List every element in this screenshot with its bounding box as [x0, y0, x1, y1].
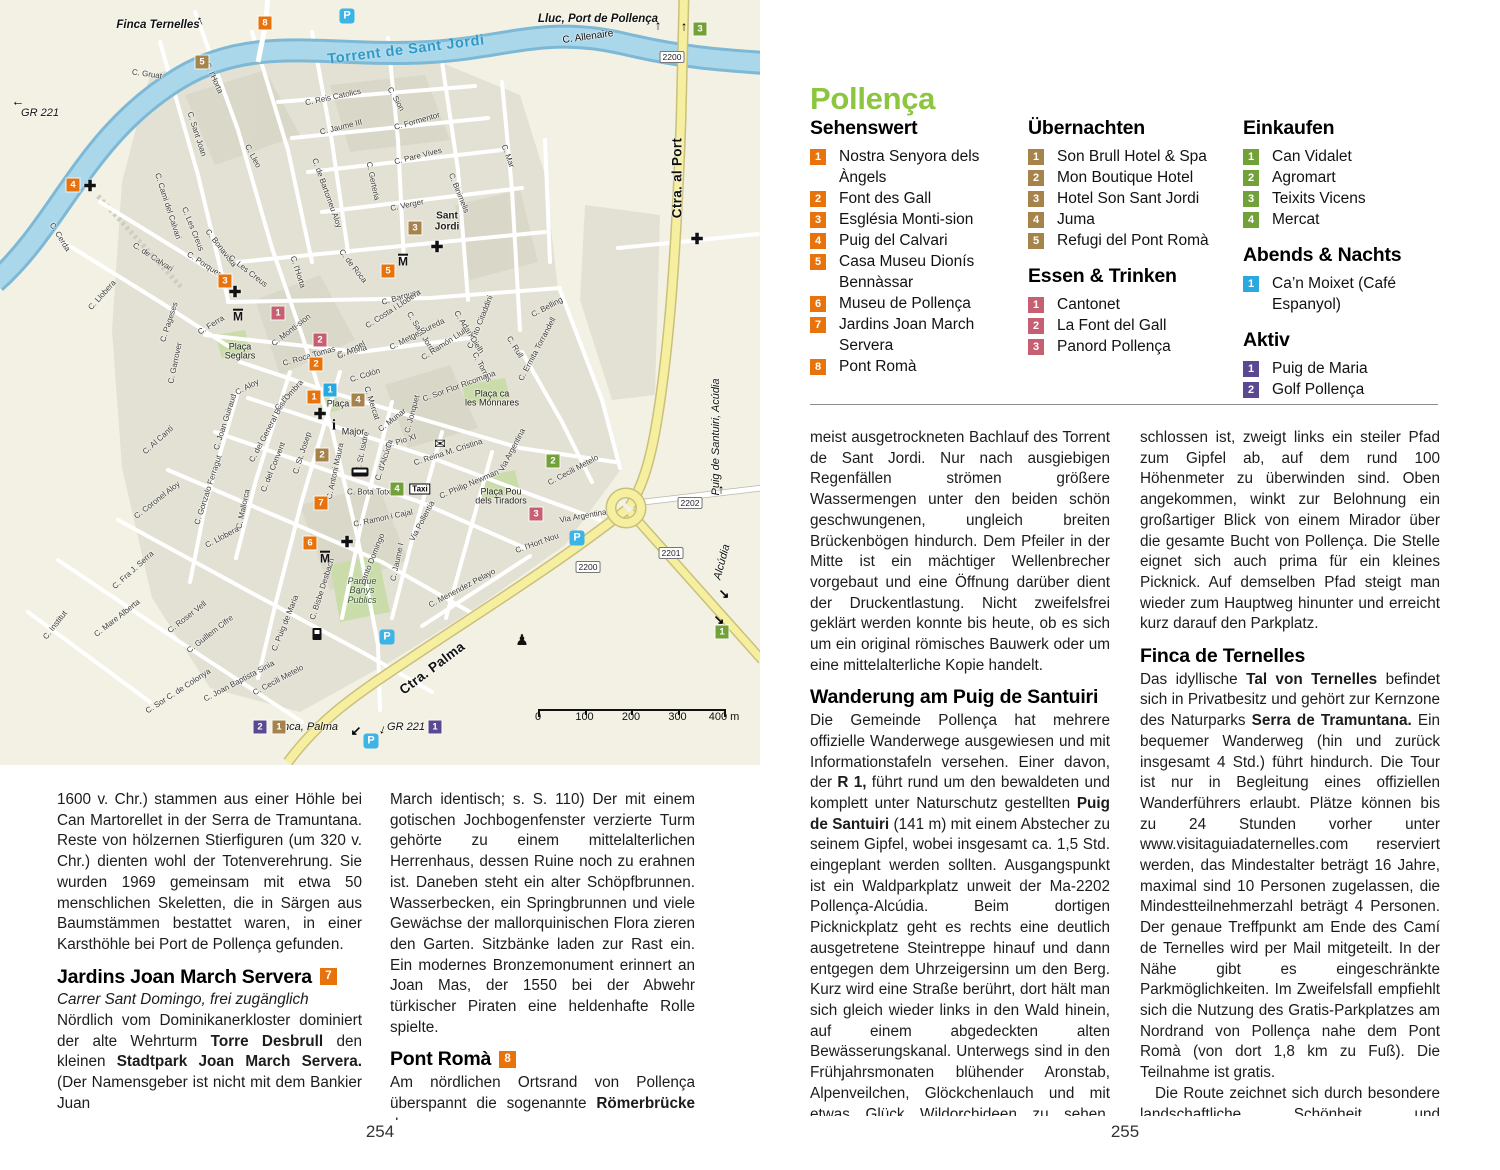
- text-block: Wanderung am Puig de Santuiri: [810, 687, 1110, 708]
- divider-rule: [810, 404, 1438, 405]
- section-heading-text: Finca de Ternelles: [1140, 646, 1305, 667]
- legend-row: 3 Panord Pollença: [1028, 336, 1236, 357]
- legend-row: 1 Nostra Senyora dels Àngels: [810, 146, 1018, 188]
- legend-row: 3 Hotel Son Sant Jordi: [1028, 188, 1236, 209]
- section-heading-text: Pont Romà: [390, 1049, 491, 1070]
- scale-tick-label: 100: [575, 711, 593, 723]
- text-block: Am nördlichen Ortsrand von Pollença über…: [390, 1073, 695, 1120]
- paragraph: Die Route zeichnet sich durch besondere …: [1140, 1084, 1440, 1116]
- legend-item-label: Teixits Vicens: [1272, 190, 1366, 207]
- text-block: meist ausgetrockneten Bachlauf des Torre…: [810, 428, 1110, 676]
- legend-row: 4 Puig del Calvari: [810, 230, 1018, 251]
- legend-badge: 5: [810, 254, 826, 270]
- legend-heading: Sehenswert: [810, 117, 917, 139]
- legend-badge: 5: [1028, 233, 1044, 249]
- legend-badge: 1: [1243, 361, 1259, 377]
- legend-item-label: Església Monti-sion: [839, 211, 973, 228]
- legend-badge: 4: [810, 233, 826, 249]
- text-block: Das idyllische Tal von Ternelles befinde…: [1140, 670, 1440, 1084]
- scale-tick-label: 200: [622, 711, 640, 723]
- legend-row: Einkaufen: [1243, 118, 1451, 140]
- text-block: Carrer Sant Domingo, frei zugänglich: [57, 990, 362, 1011]
- section-heading-badge: 8: [499, 1051, 516, 1068]
- page-number-right: 255: [810, 1122, 1440, 1142]
- legend-row: Sehenswert: [810, 118, 1018, 140]
- legend-item-label: Nostra Senyora dels Àngels: [839, 148, 979, 186]
- text-block: schlossen ist, zweigt links ein steiler …: [1140, 428, 1440, 635]
- scale-labels: 0100200300400 m: [538, 717, 724, 733]
- paragraph: Die Gemeinde Pollença hat mehrere offizi…: [810, 711, 1110, 1116]
- legend-row: 5 Casa Museu Dionís Bennàssar: [810, 251, 1018, 293]
- text-block: March identisch; s. S. 110) Der mit eine…: [390, 790, 695, 1038]
- legend-column-2: Übernachten 1 Son Brull Hotel & Spa 2 Mo…: [1028, 103, 1236, 357]
- text-block: Pont Romà 8: [390, 1049, 695, 1070]
- legend-badge: 2: [1243, 170, 1259, 186]
- paragraph: schlossen ist, zweigt links ein steiler …: [1140, 428, 1440, 635]
- legend-item-label: Font des Gall: [839, 190, 931, 207]
- legend-heading: Einkaufen: [1243, 117, 1334, 139]
- page-number-left: 254: [0, 1122, 760, 1142]
- legend-item-label: La Font del Gall: [1057, 317, 1166, 334]
- legend-heading: Abends & Nachts: [1243, 244, 1401, 266]
- section-heading-text: Wanderung am Puig de Santuiri: [810, 687, 1098, 708]
- legend-row: Übernachten: [1028, 118, 1236, 140]
- legend-item-label: Hotel Son Sant Jordi: [1057, 190, 1199, 207]
- book-spread: Torrent de Sant Jordi C. GruatC. l'Horta…: [0, 0, 1500, 1170]
- scale-bar: 0100200300400 m: [538, 709, 724, 735]
- legend-badge: 1: [1028, 297, 1044, 313]
- legend-row: Aktiv: [1243, 330, 1451, 352]
- legend-badge: 7: [810, 317, 826, 333]
- legend-row: 2 Font des Gall: [810, 188, 1018, 209]
- legend-row: 3 Teixits Vicens: [1243, 188, 1451, 209]
- legend-badge: 1: [1243, 276, 1259, 292]
- legend-badge: 8: [810, 359, 826, 375]
- scale-tick-label: 400 m: [709, 711, 740, 723]
- paragraph: Carrer Sant Domingo, frei zugänglich: [57, 990, 362, 1011]
- legend-badge: 2: [1028, 318, 1044, 334]
- paragraph: 1600 v. Chr.) stammen aus einer Höhle be…: [57, 790, 362, 956]
- scale-tick-label: 0: [535, 711, 541, 723]
- legend-row: Essen & Trinken: [1028, 266, 1236, 288]
- page-left: Torrent de Sant Jordi C. GruatC. l'Horta…: [0, 0, 760, 1170]
- legend-row: 3 Església Monti-sion: [810, 209, 1018, 230]
- legend-item-label: Cantonet: [1057, 296, 1120, 313]
- section-heading-badge: 7: [320, 968, 337, 985]
- paragraph: meist ausgetrockneten Bachlauf des Torre…: [810, 428, 1110, 676]
- legend-row: 4 Mercat: [1243, 209, 1451, 230]
- legend-badge: 3: [810, 212, 826, 228]
- right-page-column-1: meist ausgetrockneten Bachlauf des Torre…: [810, 428, 1110, 1116]
- page-right: Pollença Sehenswert 1 Nostra Senyora del…: [810, 0, 1440, 1170]
- text-block: 1600 v. Chr.) stammen aus einer Höhle be…: [57, 790, 362, 956]
- section-heading-text: Jardins Joan March Servera: [57, 967, 312, 988]
- legend-item-label: Mercat: [1272, 211, 1319, 228]
- legend-row: 8 Pont Romà: [810, 356, 1018, 377]
- legend-row: 5 Refugi del Pont Romà: [1028, 230, 1236, 251]
- legend-item-label: Son Brull Hotel & Spa: [1057, 148, 1207, 165]
- legend-item-label: Puig de Maria: [1272, 360, 1368, 377]
- legend-item-label: Museu de Pollença: [839, 295, 971, 312]
- left-page-column-2: March identisch; s. S. 110) Der mit eine…: [390, 790, 695, 1120]
- legend-item-label: Puig del Calvari: [839, 232, 948, 249]
- legend-row: 1 Cantonet: [1028, 294, 1236, 315]
- legend-row: 2 Golf Pollença: [1243, 379, 1451, 400]
- text-block: Die Gemeinde Pollença hat mehrere offizi…: [810, 711, 1110, 1116]
- paragraph: Das idyllische Tal von Ternelles befinde…: [1140, 670, 1440, 1084]
- legend-row: 1 Son Brull Hotel & Spa: [1028, 146, 1236, 167]
- legend-badge: 3: [1028, 191, 1044, 207]
- legend-badge: 6: [810, 296, 826, 312]
- legend-badge: 3: [1243, 191, 1259, 207]
- paragraph: Nördlich vom Dominikanerkloster dominier…: [57, 1011, 362, 1115]
- section-heading: Wanderung am Puig de Santuiri: [810, 687, 1110, 708]
- legend-item-label: Golf Pollença: [1272, 381, 1364, 398]
- legend-item-label: Panord Pollença: [1057, 338, 1171, 355]
- legend-item-label: Mon Boutique Hotel: [1057, 169, 1193, 186]
- legend-badge: 4: [1243, 212, 1259, 228]
- legend-badge: 4: [1028, 212, 1044, 228]
- legend-row: 4 Juma: [1028, 209, 1236, 230]
- legend-row: 6 Museu de Pollença: [810, 293, 1018, 314]
- legend-badge: 2: [1028, 170, 1044, 186]
- legend-badge: 1: [1243, 149, 1259, 165]
- right-page-column-2: schlossen ist, zweigt links ein steiler …: [1140, 428, 1440, 1116]
- legend-heading: Übernachten: [1028, 117, 1145, 139]
- text-block: Jardins Joan March Servera 7: [57, 967, 362, 988]
- section-heading: Pont Romà 8: [390, 1049, 695, 1070]
- legend-item-label: Pont Romà: [839, 358, 917, 375]
- scale-tick-label: 300: [668, 711, 686, 723]
- legend-item-label: Casa Museu Dionís Bennàssar: [839, 253, 974, 291]
- legend-item-label: Ca’n Moixet (Café Espanyol): [1272, 275, 1396, 313]
- legend-heading: Aktiv: [1243, 329, 1290, 351]
- left-page-column-1: 1600 v. Chr.) stammen aus einer Höhle be…: [57, 790, 362, 1120]
- legend-row: 7 Jardins Joan March Servera: [810, 314, 1018, 356]
- section-heading: Jardins Joan March Servera 7: [57, 967, 362, 988]
- legend-badge: 3: [1028, 339, 1044, 355]
- paragraph: March identisch; s. S. 110) Der mit eine…: [390, 790, 695, 1038]
- legend-badge: 1: [810, 149, 826, 165]
- text-block: Die Route zeichnet sich durch besondere …: [1140, 1084, 1440, 1116]
- legend-item-label: Jardins Joan March Servera: [839, 316, 974, 354]
- legend-item-label: Refugi del Pont Romà: [1057, 232, 1209, 249]
- legend-row: 1 Puig de Maria: [1243, 358, 1451, 379]
- map-base: [0, 0, 760, 765]
- legend-row: 2 La Font del Gall: [1028, 315, 1236, 336]
- legend-column-1: Sehenswert 1 Nostra Senyora dels Àngels …: [810, 103, 1018, 377]
- legend-heading: Essen & Trinken: [1028, 265, 1177, 287]
- text-block: Nördlich vom Dominikanerkloster dominier…: [57, 1011, 362, 1115]
- legend-badge: 2: [810, 191, 826, 207]
- legend-badge: 2: [1243, 382, 1259, 398]
- paragraph: Am nördlichen Ortsrand von Pollença über…: [390, 1073, 695, 1120]
- legend-badge: 1: [1028, 149, 1044, 165]
- legend-row: 2 Mon Boutique Hotel: [1028, 167, 1236, 188]
- legend-row: 1 Ca’n Moixet (Café Espanyol): [1243, 273, 1451, 315]
- legend-item-label: Agromart: [1272, 169, 1336, 186]
- legend-item-label: Can Vidalet: [1272, 148, 1352, 165]
- city-map: Torrent de Sant Jordi C. GruatC. l'Horta…: [0, 0, 760, 765]
- legend-item-label: Juma: [1057, 211, 1095, 228]
- legend-row: 1 Can Vidalet: [1243, 146, 1451, 167]
- text-block: Finca de Ternelles: [1140, 646, 1440, 667]
- legend-row: 2 Agromart: [1243, 167, 1451, 188]
- section-heading: Finca de Ternelles: [1140, 646, 1440, 667]
- legend-column-3: Einkaufen 1 Can Vidalet 2 Agromart: [1243, 103, 1451, 400]
- legend-row: Abends & Nachts: [1243, 245, 1451, 267]
